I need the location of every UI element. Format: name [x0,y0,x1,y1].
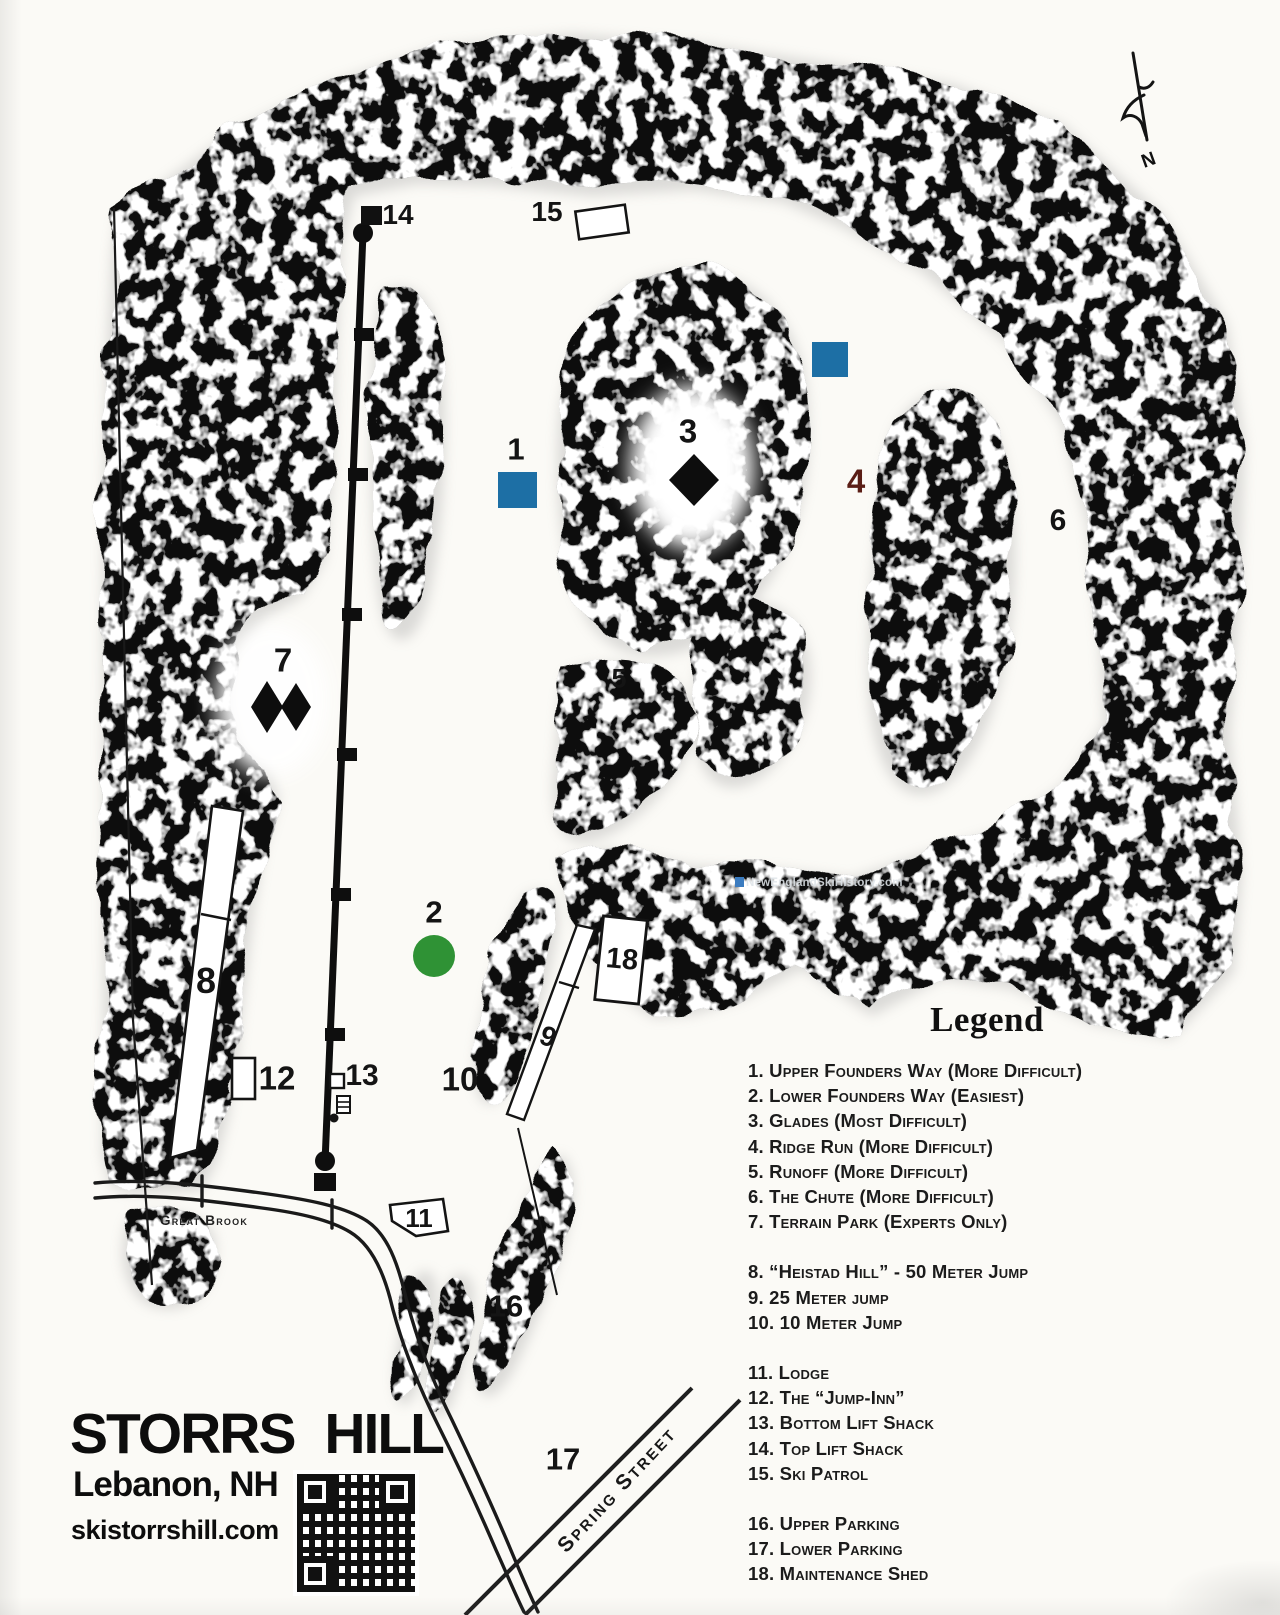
great-brook-label: Great Brook [160,1213,248,1228]
marker-3: 3 [679,415,697,448]
legend-group-parking: 16. Upper Parking 17. Lower Parking 18. … [748,1511,1226,1587]
blue-square-icon-trail1 [498,472,537,508]
legend-group-jumps: 8. “Heistad Hill” - 50 Meter Jump 9. 25 … [748,1259,1226,1335]
qr-code [297,1474,415,1592]
marker-4: 4 [847,465,865,498]
marker-7: 7 [274,644,292,677]
marker-8: 8 [196,963,216,999]
marker-1: 1 [507,434,524,465]
lift-top-terminal [353,223,373,243]
north-arrow-icon [1123,53,1153,140]
legend-item-13: 13. Bottom Lift Shack [748,1410,1226,1435]
marker-14: 14 [382,201,413,229]
blue-square-icon-trail4 [812,342,848,377]
legend-item-17: 17. Lower Parking [748,1536,1226,1561]
ski-patrol-building [575,205,628,240]
top-lift-shack-icon [361,206,382,225]
marker-10: 10 [442,1063,479,1096]
resort-website: skistorrshill.com [71,1515,279,1546]
lift-bottom-terminal [315,1151,335,1171]
jump-inn-building [232,1058,255,1099]
legend-title: Legend [748,1000,1226,1040]
legend-item-8: 8. “Heistad Hill” - 50 Meter Jump [748,1259,1226,1284]
legend-group-buildings: 11. Lodge 12. The “Jump-Inn” 13. Bottom … [748,1360,1226,1486]
marker-11: 11 [405,1205,433,1231]
trail-map-page: 1 2 3 4 5 6 7 8 9 10 11 12 13 14 15 16 1… [0,0,1280,1615]
legend-item-7: 7. Terrain Park (Experts Only) [748,1209,1226,1234]
qr-finder-top-left [297,1474,333,1510]
marker-13: 13 [345,1061,378,1091]
marker-18: 18 [605,944,640,976]
watermark: NewEnglandSkiHistory.com [735,877,903,889]
marker-16: 16 [489,1291,523,1322]
marker-12: 12 [259,1062,296,1095]
resort-location: Lebanon, NH [73,1465,278,1505]
qr-finder-top-right [379,1474,415,1510]
legend-item-9: 9. 25 Meter jump [748,1285,1226,1310]
legend-item-1: 1. Upper Founders Way (More Difficult) [748,1058,1226,1083]
watermark-icon [735,877,744,887]
qr-finder-bottom-left [297,1556,333,1592]
legend-item-14: 14. Top Lift Shack [748,1436,1226,1461]
legend-item-18: 18. Maintenance Shed [748,1561,1226,1586]
legend-group-trails: 1. Upper Founders Way (More Difficult) 2… [748,1058,1226,1234]
resort-title: STORRS HILL [70,1401,443,1467]
legend-item-4: 4. Ridge Run (More Difficult) [748,1134,1226,1159]
legend-item-2: 2. Lower Founders Way (Easiest) [748,1083,1226,1108]
legend-item-6: 6. The Chute (More Difficult) [748,1184,1226,1209]
legend-item-3: 3. Glades (Most Difficult) [748,1108,1226,1133]
legend-item-10: 10. 10 Meter Jump [748,1310,1226,1335]
legend-item-11: 11. Lodge [748,1360,1226,1385]
legend-panel: Legend 1. Upper Founders Way (More Diffi… [748,1000,1226,1612]
legend-item-12: 12. The “Jump-Inn” [748,1385,1226,1410]
marker-15: 15 [531,198,562,226]
legend-item-5: 5. Runoff (More Difficult) [748,1159,1226,1184]
marker-2: 2 [425,897,442,928]
marker-17: 17 [546,1444,580,1475]
legend-item-15: 15. Ski Patrol [748,1461,1226,1486]
marker-6: 6 [1050,506,1067,536]
green-circle-icon [413,935,455,977]
legend-item-16: 16. Upper Parking [748,1511,1226,1536]
marker-5: 5 [611,666,626,693]
